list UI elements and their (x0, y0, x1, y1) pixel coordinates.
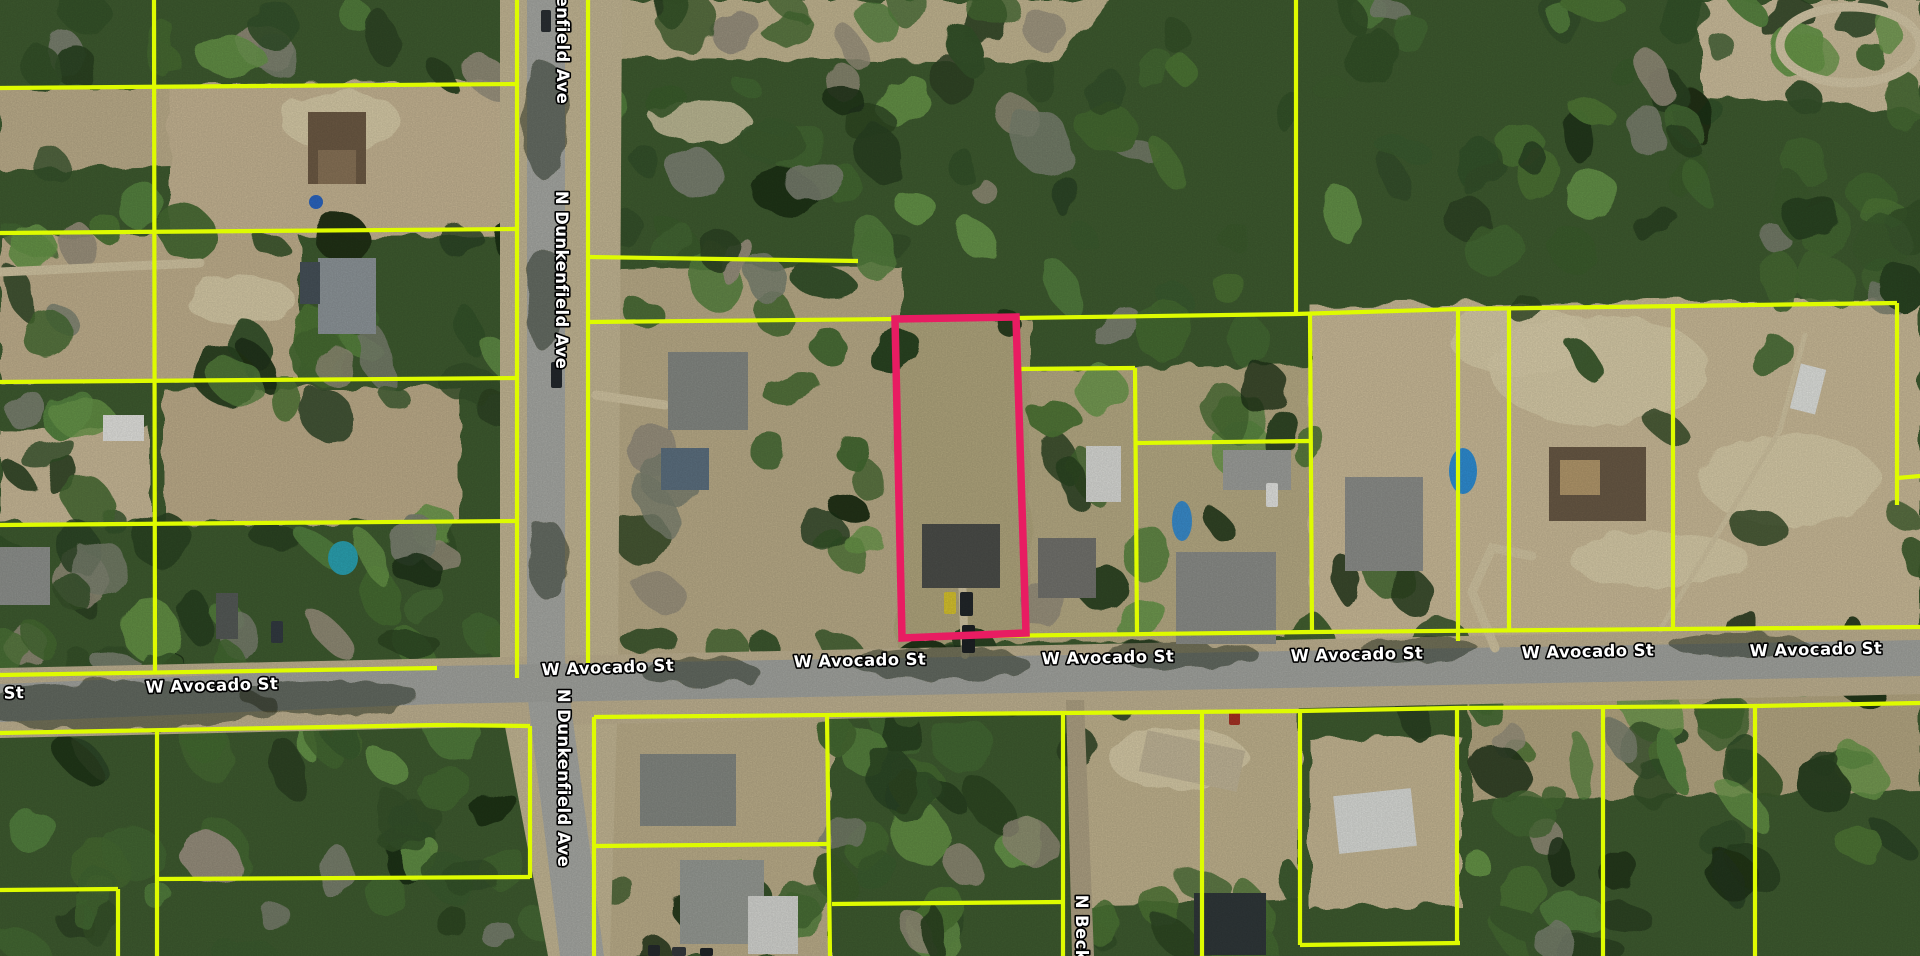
aerial-parcel-map[interactable]: W Avocado StW Avocado StW Avocado StW Av… (0, 0, 1920, 956)
street-label: W Avocado St (793, 650, 926, 672)
street-label: N Beckn (1072, 895, 1091, 956)
photo-grain (0, 0, 1920, 956)
parcel-line (157, 877, 530, 879)
parcel-line (588, 319, 895, 322)
parcel-line (596, 844, 827, 846)
parcel-line (832, 902, 1063, 904)
street-label: W Avocado St (1290, 644, 1423, 666)
street-label: W Avocado St (1749, 639, 1882, 661)
parcel-line (1135, 368, 1137, 633)
parcel-line (1016, 368, 1135, 369)
street-label: N Dunkenfield Ave (552, 191, 571, 369)
street-label: W Avocado St (145, 674, 278, 697)
map-viewport[interactable]: W Avocado StW Avocado StW Avocado StW Av… (0, 0, 1920, 956)
street-label: N Dunkenfield Ave (554, 689, 573, 867)
street-label: N Dunkenfield Ave (553, 0, 572, 104)
parcel-line (154, 0, 155, 673)
parcel-line (1137, 441, 1310, 443)
parcel-line (1300, 943, 1460, 945)
parcel-line (827, 716, 830, 956)
parcel-line (1897, 476, 1920, 478)
parcel-line (0, 889, 118, 890)
street-label: W Avocado St (1521, 641, 1654, 663)
parcel-line (1310, 314, 1312, 633)
street-label: W Avocado St (1041, 647, 1174, 669)
